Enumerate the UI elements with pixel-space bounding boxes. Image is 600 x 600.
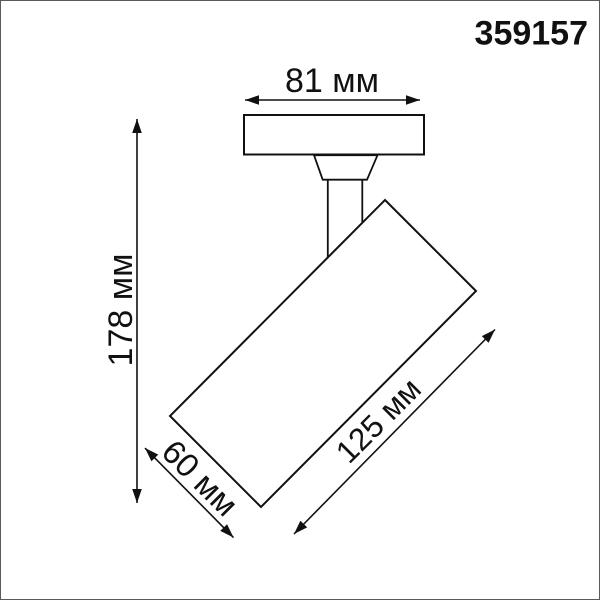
svg-text:81 мм: 81 мм (285, 62, 379, 100)
svg-text:359157: 359157 (475, 15, 588, 53)
svg-text:178 мм: 178 мм (102, 254, 140, 367)
